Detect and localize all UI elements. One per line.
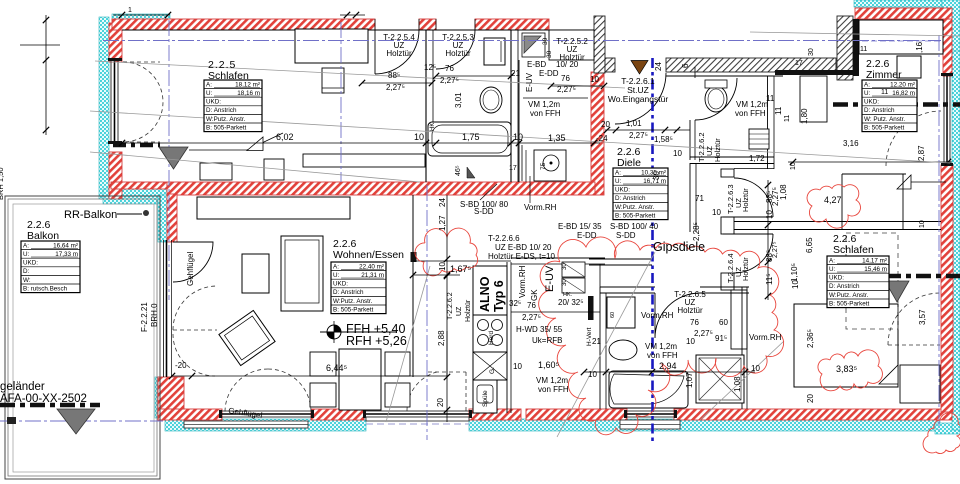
svg-text:W:Putz. Anstr.: W:Putz. Anstr. — [333, 298, 373, 305]
svg-text:Gehflügel: Gehflügel — [186, 252, 195, 286]
svg-text:T-2.2.6.2: T-2.2.6.2 — [447, 292, 454, 320]
svg-text:F-2.2.21: F-2.2.21 — [140, 302, 149, 332]
svg-text:H-WD 35/ 55: H-WD 35/ 55 — [516, 325, 563, 334]
svg-text:Vorm.RH: Vorm.RH — [749, 333, 782, 342]
svg-text:S-BD 100/ 40: S-BD 100/ 40 — [610, 222, 659, 231]
svg-text:Holztür: Holztür — [677, 306, 703, 315]
svg-text:1,67⁵: 1,67⁵ — [450, 264, 472, 274]
svg-text:11: 11 — [881, 89, 888, 96]
svg-text:T-2.2.6.6: T-2.2.6.6 — [488, 234, 520, 243]
svg-text:B: 505-Parkett: B: 505-Parkett — [829, 300, 870, 307]
svg-text:A:: A: — [333, 263, 339, 270]
svg-text:Holztür: Holztür — [713, 138, 722, 162]
svg-text:1,07: 1,07 — [685, 372, 694, 388]
svg-text:76: 76 — [527, 301, 536, 310]
svg-text:UKD:: UKD: — [829, 275, 844, 282]
svg-text:A:: A: — [23, 242, 29, 249]
svg-text:60: 60 — [719, 318, 728, 327]
svg-text:30: 30 — [546, 50, 553, 58]
svg-text:W:Putz. Anstr.: W:Putz. Anstr. — [829, 292, 869, 299]
svg-text:Vorm.RH: Vorm.RH — [518, 265, 527, 298]
svg-text:11⁵: 11⁵ — [765, 273, 774, 285]
svg-text:1,27: 1,27 — [438, 215, 447, 231]
svg-text:12⁵: 12⁵ — [424, 63, 436, 72]
svg-text:32⁵: 32⁵ — [509, 299, 521, 308]
svg-text:6,02: 6,02 — [276, 132, 294, 142]
svg-text:10: 10 — [765, 210, 774, 219]
svg-text:1,72: 1,72 — [749, 154, 765, 163]
svg-text:60: 60 — [610, 312, 616, 318]
svg-text:1,01: 1,01 — [626, 119, 642, 128]
svg-text:H-Vert: H-Vert — [586, 327, 593, 346]
svg-text:Holztür E-DS, t=10: Holztür E-DS, t=10 — [488, 252, 555, 261]
svg-text:6,65: 6,65 — [805, 237, 814, 253]
svg-text:4,27: 4,27 — [824, 195, 842, 205]
svg-text:U:: U: — [864, 90, 871, 97]
svg-text:24: 24 — [438, 198, 447, 207]
svg-text:von FFH: von FFH — [530, 109, 561, 118]
svg-text:E-DD: E-DD — [577, 231, 597, 240]
svg-text:30: 30 — [808, 48, 815, 56]
svg-text:11: 11 — [774, 106, 783, 115]
svg-text:1,75: 1,75 — [462, 132, 480, 142]
svg-text:30: 30 — [542, 37, 549, 45]
svg-text:3,01: 3,01 — [454, 92, 463, 108]
svg-text:HK.: HK. — [563, 292, 573, 298]
svg-text:11: 11 — [766, 94, 775, 103]
svg-text:B: 505-Parkett: B: 505-Parkett — [615, 212, 656, 219]
svg-text:E-UV: E-UV — [525, 72, 534, 92]
svg-text:1,80: 1,80 — [800, 108, 809, 124]
svg-text:B: 505-Parkett: B: 505-Parkett — [333, 306, 374, 313]
svg-text:UKD:: UKD: — [615, 187, 630, 194]
svg-text:3,83⁵: 3,83⁵ — [836, 364, 858, 374]
svg-text:Vorm.RH: Vorm.RH — [641, 311, 674, 320]
svg-text:E-DD: E-DD — [539, 69, 559, 78]
svg-text:U:: U: — [615, 178, 622, 185]
svg-text:D: Anstrich: D: Anstrich — [864, 107, 895, 114]
svg-text:2,87: 2,87 — [917, 145, 926, 161]
svg-text:10: 10 — [513, 362, 522, 371]
svg-text:10: 10 — [438, 262, 447, 271]
svg-text:24: 24 — [654, 62, 663, 71]
svg-text:10: 10 — [590, 75, 599, 84]
svg-text:2,27⁵: 2,27⁵ — [522, 313, 541, 322]
svg-text:91⁵: 91⁵ — [715, 334, 727, 343]
svg-text:Wohnen/Essen: Wohnen/Essen — [333, 249, 404, 261]
svg-text:1,60⁵: 1,60⁵ — [538, 360, 560, 370]
svg-text:UKD:: UKD: — [864, 99, 879, 106]
svg-text:2,28⁵: 2,28⁵ — [692, 222, 701, 241]
svg-text:75: 75 — [540, 162, 547, 170]
svg-text:BRH 1,50: BRH 1,50 — [0, 167, 5, 200]
svg-text:von FFH: von FFH — [538, 385, 569, 394]
svg-text:46⁵: 46⁵ — [455, 165, 462, 176]
svg-text:11: 11 — [784, 115, 791, 122]
svg-text:,16: ,16 — [915, 41, 924, 53]
svg-text:S-DD: S-DD — [474, 207, 494, 216]
svg-text:-20: -20 — [175, 361, 187, 370]
svg-text:UZ E-BD 10/ 20: UZ E-BD 10/ 20 — [495, 243, 552, 252]
svg-text:20/ 32⁵: 20/ 32⁵ — [558, 298, 584, 307]
svg-text:1,08: 1,08 — [733, 376, 742, 392]
svg-text:ALNO: ALNO — [478, 276, 492, 312]
svg-text:30: 30 — [562, 279, 568, 286]
svg-text:U:: U: — [333, 272, 340, 279]
svg-text:W:Putz. Anstr.: W:Putz. Anstr. — [206, 116, 246, 123]
svg-text:Holztür: Holztür — [445, 49, 471, 58]
svg-text:UZ: UZ — [456, 306, 463, 316]
svg-text:10: 10 — [673, 149, 682, 158]
svg-text:1,35: 1,35 — [548, 133, 566, 143]
svg-text:U:: U: — [206, 90, 213, 97]
svg-text:76: 76 — [445, 64, 454, 73]
svg-text:B: rutsch.Besch: B: rutsch.Besch — [23, 285, 68, 292]
svg-text:76: 76 — [690, 318, 699, 327]
svg-text:10: 10 — [712, 208, 721, 217]
svg-text:17: 17 — [795, 60, 803, 67]
svg-text:G.: G. — [489, 367, 496, 374]
svg-text:10: 10 — [414, 132, 424, 142]
svg-text:B: 505-Parkett: B: 505-Parkett — [864, 124, 905, 131]
svg-text:E-BD 15/ 35: E-BD 15/ 35 — [558, 222, 602, 231]
svg-text:RFH +5,26: RFH +5,26 — [346, 334, 407, 348]
svg-text:Vorm.RH: Vorm.RH — [524, 203, 557, 212]
svg-text:10: 10 — [588, 370, 597, 379]
svg-text:Holztür: Holztür — [741, 188, 750, 212]
svg-text:Holztür: Holztür — [465, 299, 472, 322]
svg-text:D: Anstrich: D: Anstrich — [206, 107, 237, 114]
svg-text:20: 20 — [436, 398, 445, 407]
svg-text:2,27⁵: 2,27⁵ — [386, 83, 405, 92]
svg-text:1: 1 — [128, 7, 132, 14]
svg-text:1,58⁵: 1,58⁵ — [654, 135, 673, 144]
svg-text:-24: -24 — [596, 134, 608, 143]
svg-text:Zimmer: Zimmer — [866, 69, 902, 81]
svg-text:10: 10 — [513, 132, 523, 142]
svg-text:A:: A: — [864, 81, 870, 88]
svg-text:21: 21 — [511, 69, 520, 78]
svg-text:UKD:: UKD: — [333, 281, 348, 288]
svg-text:D:: D: — [23, 268, 30, 275]
svg-text:Diele: Diele — [617, 157, 641, 169]
svg-text:D: Anstrich: D: Anstrich — [615, 195, 646, 202]
svg-text:3,57: 3,57 — [918, 309, 927, 325]
svg-text:B: 505-Parkett: B: 505-Parkett — [206, 124, 247, 131]
svg-text:HK: HK — [430, 123, 436, 131]
svg-text:30: 30 — [652, 171, 661, 180]
svg-text:U:: U: — [23, 251, 30, 258]
svg-text:Schlafen: Schlafen — [833, 244, 874, 256]
svg-text:Balkon: Balkon — [27, 230, 59, 242]
svg-text:W: Putz. Anstr.: W: Putz. Anstr. — [864, 116, 905, 123]
svg-text:Typ 6: Typ 6 — [492, 280, 506, 312]
svg-text:17: 17 — [509, 165, 517, 172]
svg-text:Holztür: Holztür — [741, 257, 750, 281]
svg-text:10: 10 — [686, 337, 695, 346]
svg-text:VM 1,2m: VM 1,2m — [528, 100, 560, 109]
svg-text:VM 1,2m: VM 1,2m — [736, 100, 768, 109]
svg-text:76: 76 — [561, 74, 570, 83]
svg-text:VM 1,2m: VM 1,2m — [536, 376, 568, 385]
svg-text:3,16: 3,16 — [843, 139, 859, 148]
svg-text:11: 11 — [860, 46, 867, 53]
svg-text:W:Putz. Anstr.: W:Putz. Anstr. — [615, 204, 655, 211]
svg-text:AFA-00-XX-2502: AFA-00-XX-2502 — [0, 393, 87, 405]
svg-text:Herd: Herd — [488, 331, 495, 345]
svg-text:E-BD: E-BD — [527, 60, 546, 69]
svg-text:2,27⁵: 2,27⁵ — [694, 329, 713, 338]
svg-text:2,94: 2,94 — [659, 361, 677, 371]
svg-text:20: 20 — [806, 394, 815, 403]
svg-text:1,08: 1,08 — [779, 184, 788, 200]
svg-text:1,10⁵: 1,10⁵ — [790, 263, 799, 282]
svg-text:von FFH: von FFH — [647, 351, 678, 360]
svg-text:geländer: geländer — [0, 381, 45, 393]
svg-text:A:: A: — [206, 81, 212, 88]
svg-text:Holztür: Holztür — [386, 49, 412, 58]
svg-text:2,27⁵: 2,27⁵ — [440, 76, 459, 85]
svg-text:10: 10 — [919, 220, 926, 228]
svg-text:Gipsdiele: Gipsdiele — [653, 240, 705, 254]
svg-text:BRH.0: BRH.0 — [150, 303, 159, 327]
svg-text:GK: GK — [530, 289, 539, 301]
svg-text:UKD:: UKD: — [206, 99, 221, 106]
svg-text:2,27⁵: 2,27⁵ — [772, 241, 779, 258]
svg-text:Wo.Eingangstür: Wo.Eingangstür — [608, 94, 668, 104]
svg-text:10/ 20: 10/ 20 — [556, 60, 579, 69]
svg-text:UKD:: UKD: — [23, 260, 38, 267]
svg-text:RR-Balkon: RR-Balkon — [64, 209, 117, 221]
svg-text:6,44⁵: 6,44⁵ — [326, 363, 348, 373]
svg-text:E-UV: E-UV — [544, 265, 556, 292]
svg-text:von FFH: von FFH — [735, 109, 766, 118]
svg-text:S-DD: S-DD — [616, 231, 636, 240]
svg-text:Spüle: Spüle — [482, 390, 489, 407]
svg-text:D: Anstrich: D: Anstrich — [333, 289, 364, 296]
svg-text:88⁵: 88⁵ — [388, 71, 400, 80]
svg-text:A:: A: — [829, 257, 835, 264]
svg-text:U:: U: — [829, 266, 836, 273]
svg-text:D: Anstrich: D: Anstrich — [829, 283, 860, 290]
svg-text:A:: A: — [615, 169, 621, 176]
svg-text:W:: W: — [23, 277, 31, 284]
svg-text:71: 71 — [695, 194, 704, 203]
svg-text:VM 1,2m: VM 1,2m — [645, 342, 677, 351]
svg-text:2,27⁵: 2,27⁵ — [629, 131, 648, 140]
svg-text:6: 6 — [681, 63, 690, 68]
svg-text:Uk=RFB: Uk=RFB — [532, 336, 562, 345]
svg-text:21: 21 — [592, 337, 601, 346]
svg-text:2,36⁵: 2,36⁵ — [806, 329, 815, 348]
svg-text:2,88: 2,88 — [437, 330, 446, 346]
svg-text:30: 30 — [562, 263, 568, 270]
svg-text:10: 10 — [790, 162, 797, 170]
